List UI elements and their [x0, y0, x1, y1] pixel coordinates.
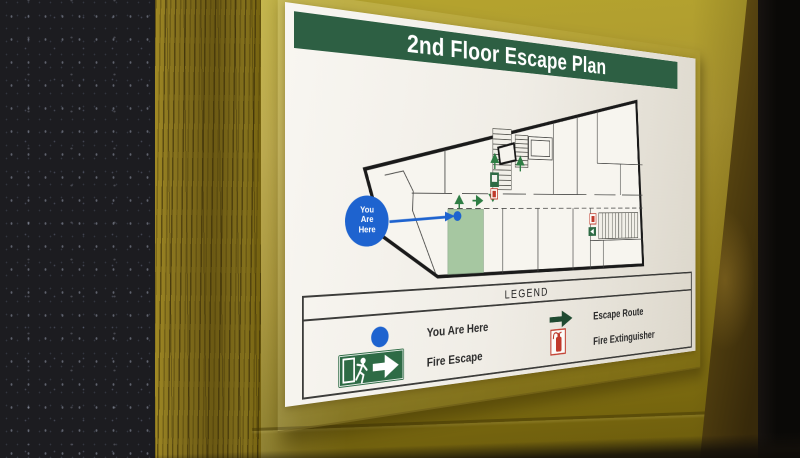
- highlighted-room: [448, 209, 484, 274]
- escape-plan-sign: 2nd Floor Escape Plan: [285, 2, 696, 407]
- you-are-here-dot: [454, 211, 462, 221]
- elevator-shaft: [498, 143, 516, 165]
- escape-route-arrow-icon: [549, 308, 573, 330]
- wood-plank: [155, 0, 261, 458]
- fire-extinguisher-icon: [550, 328, 566, 356]
- photo-of-escape-plan-sign: 2nd Floor Escape Plan: [0, 0, 800, 458]
- fire-escape-marker-center: [490, 172, 499, 187]
- you-are-here-dot-icon: [371, 326, 388, 348]
- legend-label-fire-extinguisher: Fire Extinguisher: [593, 328, 654, 347]
- fire-extinguisher-marker-center: [491, 189, 498, 199]
- fire-escape-marker-right: [589, 227, 596, 236]
- dark-speckled-wall: [0, 0, 157, 458]
- you-are-here-marker-label: You Are Here: [355, 206, 379, 236]
- corridor-dashed-line: [448, 208, 643, 209]
- legend-label-you-are-here: You Are Here: [427, 320, 489, 340]
- legend-label-escape-route: Escape Route: [593, 305, 643, 322]
- dark-right-gap: [758, 0, 800, 458]
- legend-label-fire-escape: Fire Escape: [427, 349, 483, 370]
- floor-plan: [345, 75, 643, 282]
- fire-escape-sign-icon: [338, 348, 404, 388]
- fire-extinguisher-marker-right: [590, 214, 596, 224]
- wood-grain: [155, 0, 261, 458]
- stairwell-right: [599, 213, 638, 239]
